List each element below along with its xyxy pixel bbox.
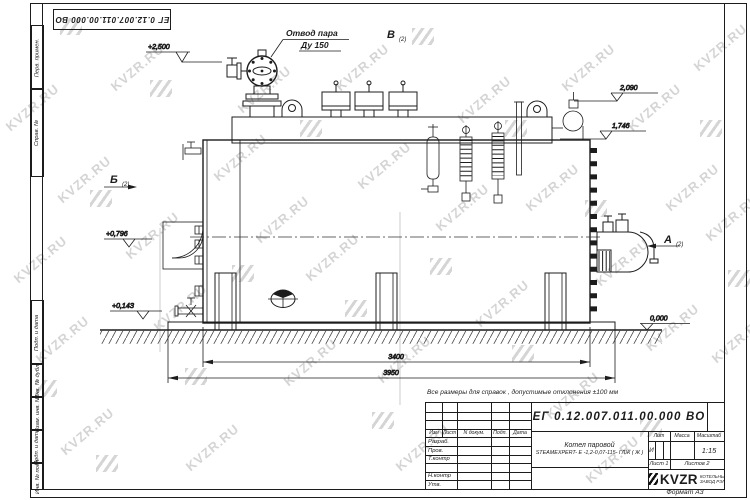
view-marker-v: В (2) [387, 29, 406, 43]
col-header-podp: Подп. [491, 429, 509, 437]
elevation-0796: +0,796 [104, 231, 152, 247]
lit-value: И [648, 441, 655, 459]
dim-3950-value: 3950 [383, 370, 399, 377]
col-header-izm: Изм [426, 429, 442, 437]
elevation-0143: +0,14З [110, 303, 162, 319]
col-header-list: Лист [442, 429, 457, 437]
elevation-0796-value: +0,796 [106, 231, 128, 238]
elevation-2090: 2,090 [574, 85, 658, 101]
row-label-tkontr: Т.контр [426, 455, 459, 463]
lit-header: Лит [648, 431, 670, 441]
col-header-ndokum: N докум. [457, 429, 491, 437]
callout-line1: Отвод пара [286, 28, 338, 38]
mass-header: Масса [670, 431, 694, 441]
burner [597, 214, 658, 272]
drawing-sheet: KVZR.RUKVZR.RUKVZR.RUKVZR.RUKVZR.RUKVZR.… [0, 0, 750, 500]
kvzr-logo-caption: КОТЕЛЬНЫЙ ЗАВОД РЭП [700, 474, 724, 485]
elevation-1746-value: 1,746 [612, 123, 630, 130]
sheets-total: Листов 2 [670, 459, 724, 469]
view-b-letter: Б [110, 174, 118, 186]
callout-line2: Ду 150 [300, 40, 329, 50]
front-nozzles [163, 142, 203, 317]
product-name-line1: Котел паровой [564, 441, 614, 450]
format-label: Формат А3 [650, 489, 720, 496]
row-label-razrab: Разраб. [426, 437, 459, 446]
sheet-number: Лист 1 [648, 459, 670, 469]
row-label-utv: Утв. [426, 480, 459, 489]
elevation-0000: 0,000 [640, 316, 690, 331]
scale-header: Масштаб [694, 431, 724, 441]
elevation-0000-value: 0,000 [650, 316, 668, 323]
view-a-index: (2) [676, 242, 683, 248]
elevation-2500-value: +2,500 [148, 44, 170, 51]
elevation-2090-value: 2,090 [619, 85, 638, 92]
kvzr-logo-text: KVZR [660, 472, 698, 487]
safety-valves [322, 81, 417, 117]
product-name-cell: Котел паровой STEAMEXPERT- Е -1,2-0,07-1… [531, 431, 648, 467]
view-v-index: (2) [399, 37, 406, 43]
company-logo-cell: KVZR КОТЕЛЬНЫЙ ЗАВОД РЭП [648, 469, 724, 489]
pressure-gauge-siphon [552, 92, 583, 140]
boiler-shell [190, 140, 602, 323]
dim-3400-value: 3400 [388, 354, 404, 361]
product-name-line2: STEAMEXPERT- Е -1,2-0,07-115- ГЛЖ ( Ж ) [536, 450, 644, 457]
kvzr-logo-icon [648, 473, 658, 485]
fold-marks [160, 212, 400, 405]
steam-outlet-callout: Отвод пара Ду 150 [271, 28, 349, 57]
row-label-prov: Пров. [426, 446, 459, 455]
scale-value: 1:15 [694, 441, 724, 459]
view-a-letter: А [663, 234, 672, 246]
steam-outlet-valve [227, 50, 281, 117]
manhole [268, 290, 298, 308]
view-marker-b: Б (2) [104, 174, 137, 189]
stamp-doc-number: ЕГ 0.12.007.011.00.000 ВО [531, 403, 707, 431]
title-block: ЕГ 0.12.007.011.00.000 ВО Изм Лист N док… [425, 402, 725, 490]
elevation-2500: +2,500 [146, 44, 222, 62]
col-header-data: Дата [509, 429, 531, 437]
elevation-0143-value: +0,14З [112, 303, 135, 310]
row-label-nkontr: Н.контр [426, 472, 459, 480]
ground-hatch [100, 330, 662, 344]
support-legs [215, 273, 566, 330]
view-v-letter: В [387, 29, 395, 41]
reference-note: Все размеры для справок , допустимые отк… [427, 389, 618, 396]
